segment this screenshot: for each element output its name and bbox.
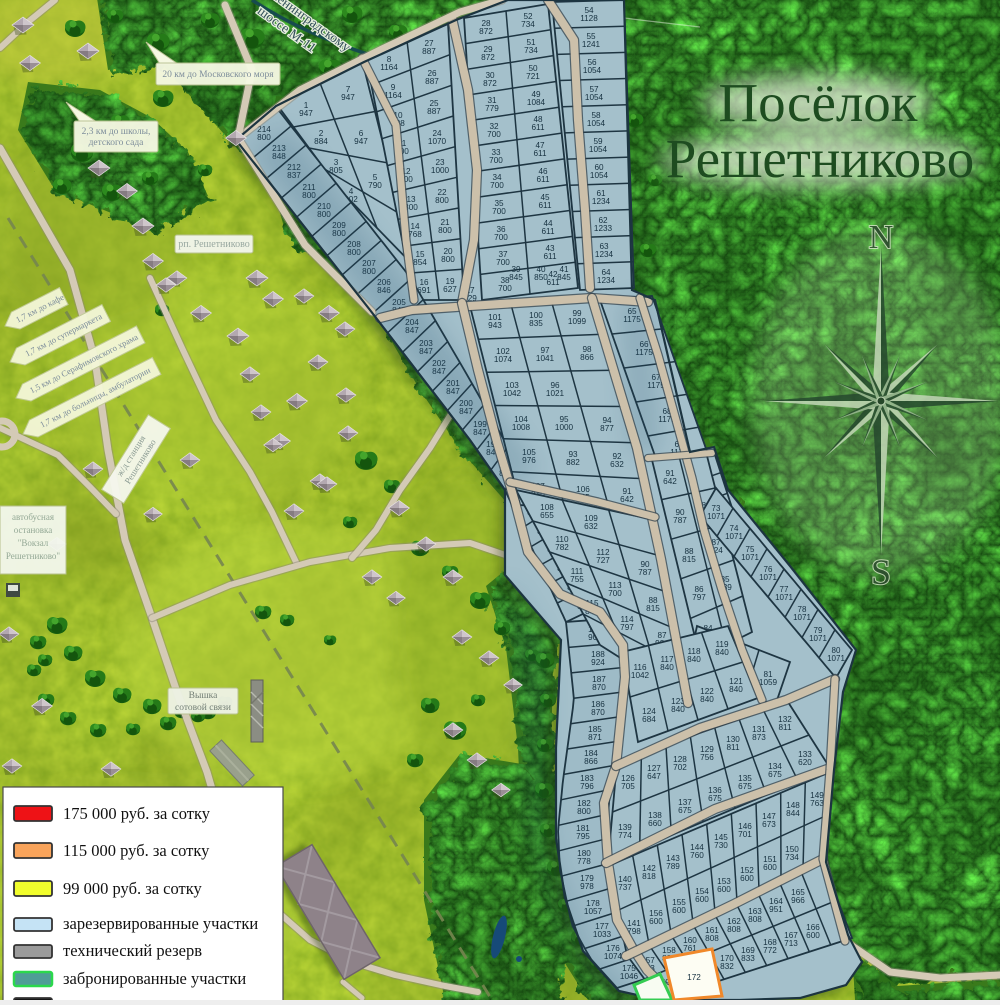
svg-text:166600: 166600 [806,923,820,940]
svg-text:152600: 152600 [740,866,754,883]
svg-text:131873: 131873 [752,725,766,742]
svg-text:149763: 149763 [810,791,824,808]
svg-text:140737: 140737 [618,875,632,892]
svg-text:143789: 143789 [666,854,680,871]
svg-text:138660: 138660 [648,811,662,828]
svg-text:145730: 145730 [714,833,728,850]
svg-text:148844: 148844 [786,801,800,818]
svg-text:130811: 130811 [726,735,740,752]
svg-text:сотовой связи: сотовой связи [175,702,231,713]
svg-text:181795: 181795 [576,824,590,841]
svg-text:112727: 112727 [596,548,610,565]
svg-text:Решетниково": Решетниково" [6,551,60,561]
svg-text:Посёлок: Посёлок [718,72,917,133]
svg-text:1041008: 1041008 [512,415,531,432]
svg-text:2,3 км до школы,: 2,3 км до школы, [82,127,151,137]
svg-text:Решетниково: Решетниково [666,128,974,189]
svg-text:114797: 114797 [620,615,634,632]
svg-text:S: S [871,552,891,592]
svg-text:зарезервированные участки: зарезервированные участки [63,914,258,933]
svg-text:164951: 164951 [769,897,783,914]
svg-text:127647: 127647 [647,764,661,781]
svg-text:182800: 182800 [577,799,591,816]
svg-text:111755: 111755 [570,567,584,584]
svg-text:108655: 108655 [540,503,554,520]
svg-text:161808: 161808 [705,926,719,943]
svg-text:183796: 183796 [580,774,594,791]
svg-text:133620: 133620 [798,750,812,767]
svg-text:"Вокзал: "Вокзал [18,538,49,548]
svg-text:122840: 122840 [700,687,714,704]
svg-text:забронированные участки: забронированные участки [63,969,246,988]
svg-text:рп. Решетниково: рп. Решетниково [178,239,249,250]
svg-text:165966: 165966 [791,888,805,905]
svg-text:детского сада: детского сада [89,138,145,148]
svg-text:153600: 153600 [717,877,731,894]
svg-text:146701: 146701 [738,822,752,839]
svg-text:1761074: 1761074 [604,944,623,961]
svg-text:179978: 179978 [580,874,594,891]
svg-text:175 000 руб. за сотку: 175 000 руб. за сотку [63,804,211,823]
svg-text:технический резерв: технический резерв [63,941,202,960]
svg-text:156600: 156600 [649,909,663,926]
svg-text:147673: 147673 [762,812,776,829]
svg-text:142818: 142818 [642,864,656,881]
svg-text:N: N [869,219,894,256]
svg-text:184866: 184866 [584,749,598,766]
svg-text:109632: 109632 [584,514,598,531]
svg-text:169833: 169833 [741,946,755,963]
svg-text:135675: 135675 [738,774,752,791]
svg-text:110782: 110782 [555,535,569,552]
svg-text:119840: 119840 [715,640,729,657]
svg-text:187870: 187870 [592,675,606,692]
svg-text:162808: 162808 [727,917,741,934]
svg-text:186870: 186870 [591,700,605,717]
svg-text:124684: 124684 [642,707,656,724]
svg-text:137675: 137675 [678,798,692,815]
svg-text:168772: 168772 [763,938,777,955]
svg-text:144760: 144760 [690,843,704,860]
svg-text:170832: 170832 [720,954,734,971]
svg-text:180778: 180778 [577,849,591,866]
svg-text:автобусная: автобусная [12,512,54,522]
svg-text:155600: 155600 [672,898,686,915]
svg-text:остановка: остановка [14,525,53,535]
svg-text:1031042: 1031042 [503,381,522,398]
svg-text:154600: 154600 [695,887,709,904]
svg-text:214800: 214800 [257,125,271,142]
svg-text:150734: 150734 [785,845,799,862]
svg-text:185871: 185871 [588,725,602,742]
svg-text:99 000 руб. за сотку: 99 000 руб. за сотку [63,879,203,898]
svg-text:101943: 101943 [488,313,502,330]
svg-text:167713: 167713 [784,931,798,948]
svg-text:115 000 руб. за сотку: 115 000 руб. за сотку [63,841,210,860]
svg-text:163808: 163808 [748,907,762,924]
svg-text:20 км до Московского моря: 20 км до Московского моря [162,70,274,80]
svg-text:172: 172 [687,973,701,982]
svg-text:136675: 136675 [708,786,722,803]
svg-text:113700: 113700 [608,581,622,598]
svg-text:1771033: 1771033 [593,922,612,939]
svg-text:121840: 121840 [729,677,743,694]
svg-text:151600: 151600 [763,855,777,872]
svg-text:118840: 118840 [687,647,701,664]
svg-text:100835: 100835 [529,311,543,328]
svg-text:134675: 134675 [768,762,782,779]
svg-text:160761: 160761 [683,936,697,953]
svg-text:126705: 126705 [621,774,635,791]
svg-text:132811: 132811 [778,715,792,732]
svg-text:129756: 129756 [700,745,714,762]
svg-text:1021074: 1021074 [494,347,513,364]
svg-text:117840: 117840 [660,655,674,672]
svg-text:1781057: 1781057 [584,899,603,916]
svg-text:Вышка: Вышка [189,691,219,701]
svg-text:128702: 128702 [673,755,687,772]
svg-text:188924: 188924 [591,650,605,667]
svg-text:139774: 139774 [618,823,632,840]
